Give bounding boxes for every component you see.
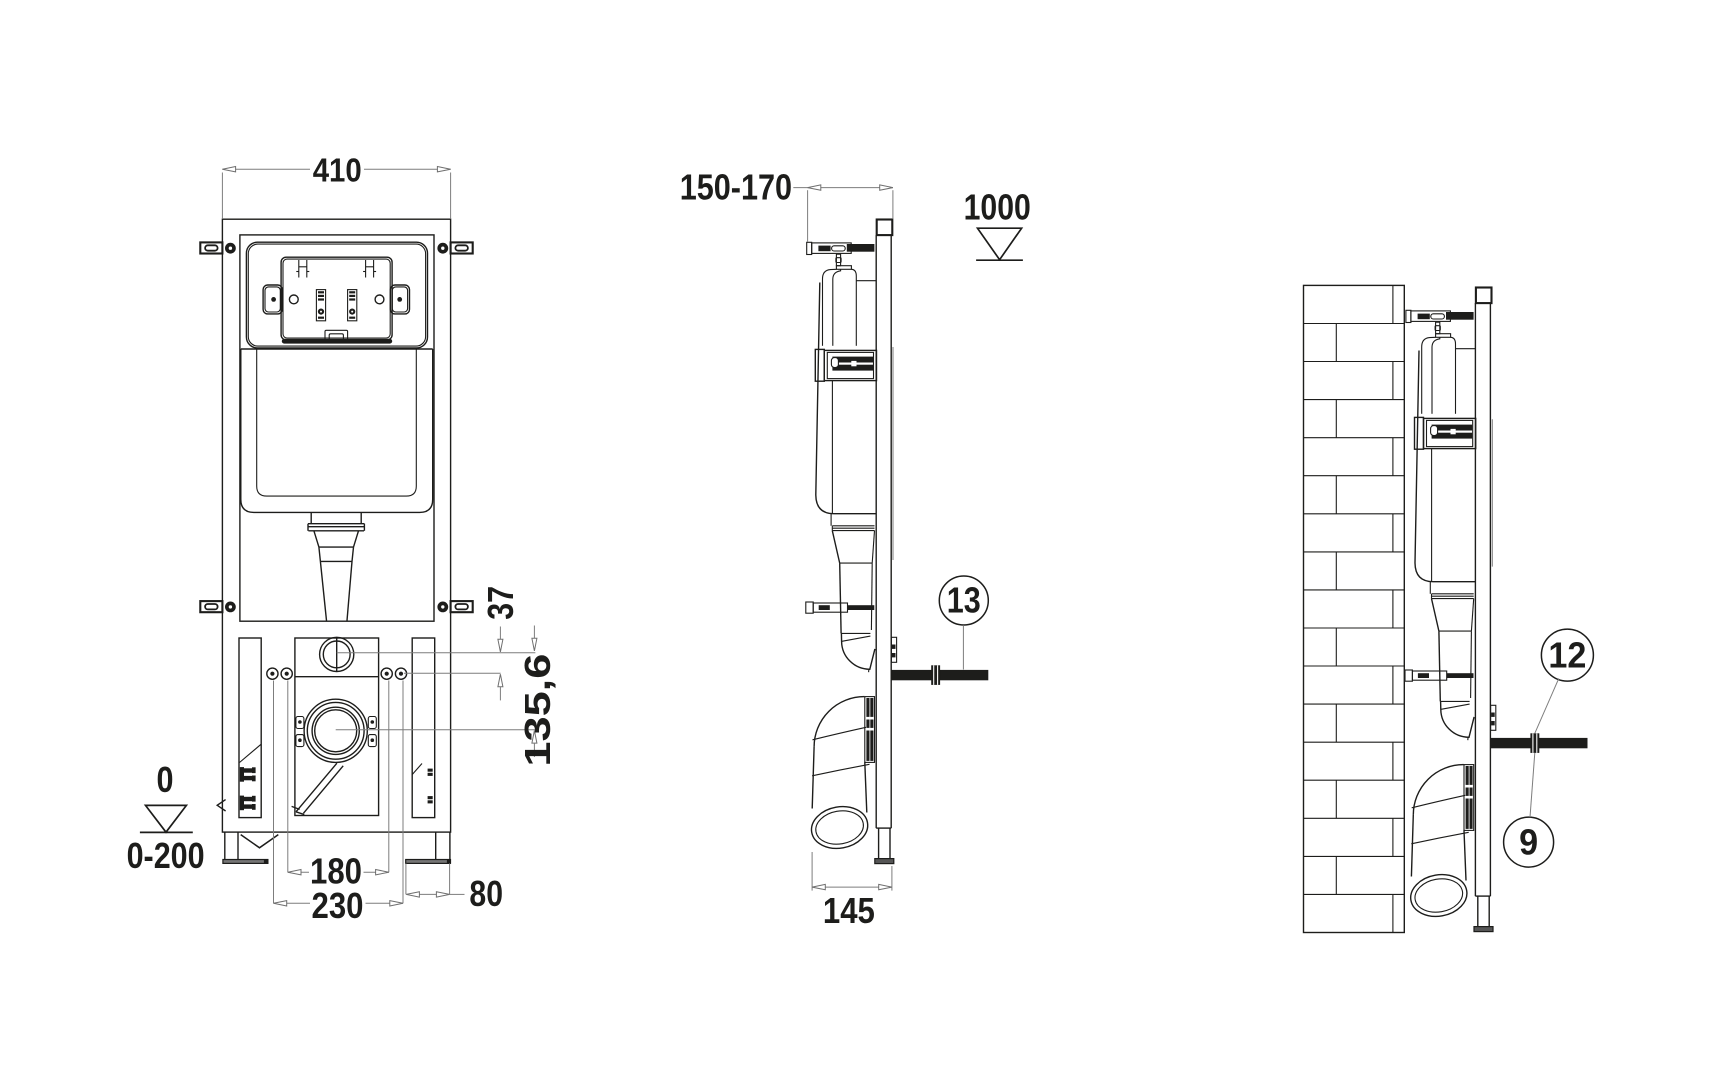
svg-text:135,6: 135,6 xyxy=(517,654,558,767)
svg-text:150-170: 150-170 xyxy=(680,166,792,207)
svg-text:0-200: 0-200 xyxy=(127,835,205,876)
svg-text:13: 13 xyxy=(947,580,981,621)
svg-text:12: 12 xyxy=(1548,635,1586,676)
svg-text:80: 80 xyxy=(469,873,503,914)
svg-text:0: 0 xyxy=(157,759,174,800)
svg-text:9: 9 xyxy=(1519,821,1538,862)
svg-text:145: 145 xyxy=(823,890,875,931)
svg-text:1000: 1000 xyxy=(964,186,1031,227)
svg-text:230: 230 xyxy=(312,885,364,926)
svg-text:410: 410 xyxy=(313,151,362,188)
svg-text:37: 37 xyxy=(480,586,521,620)
